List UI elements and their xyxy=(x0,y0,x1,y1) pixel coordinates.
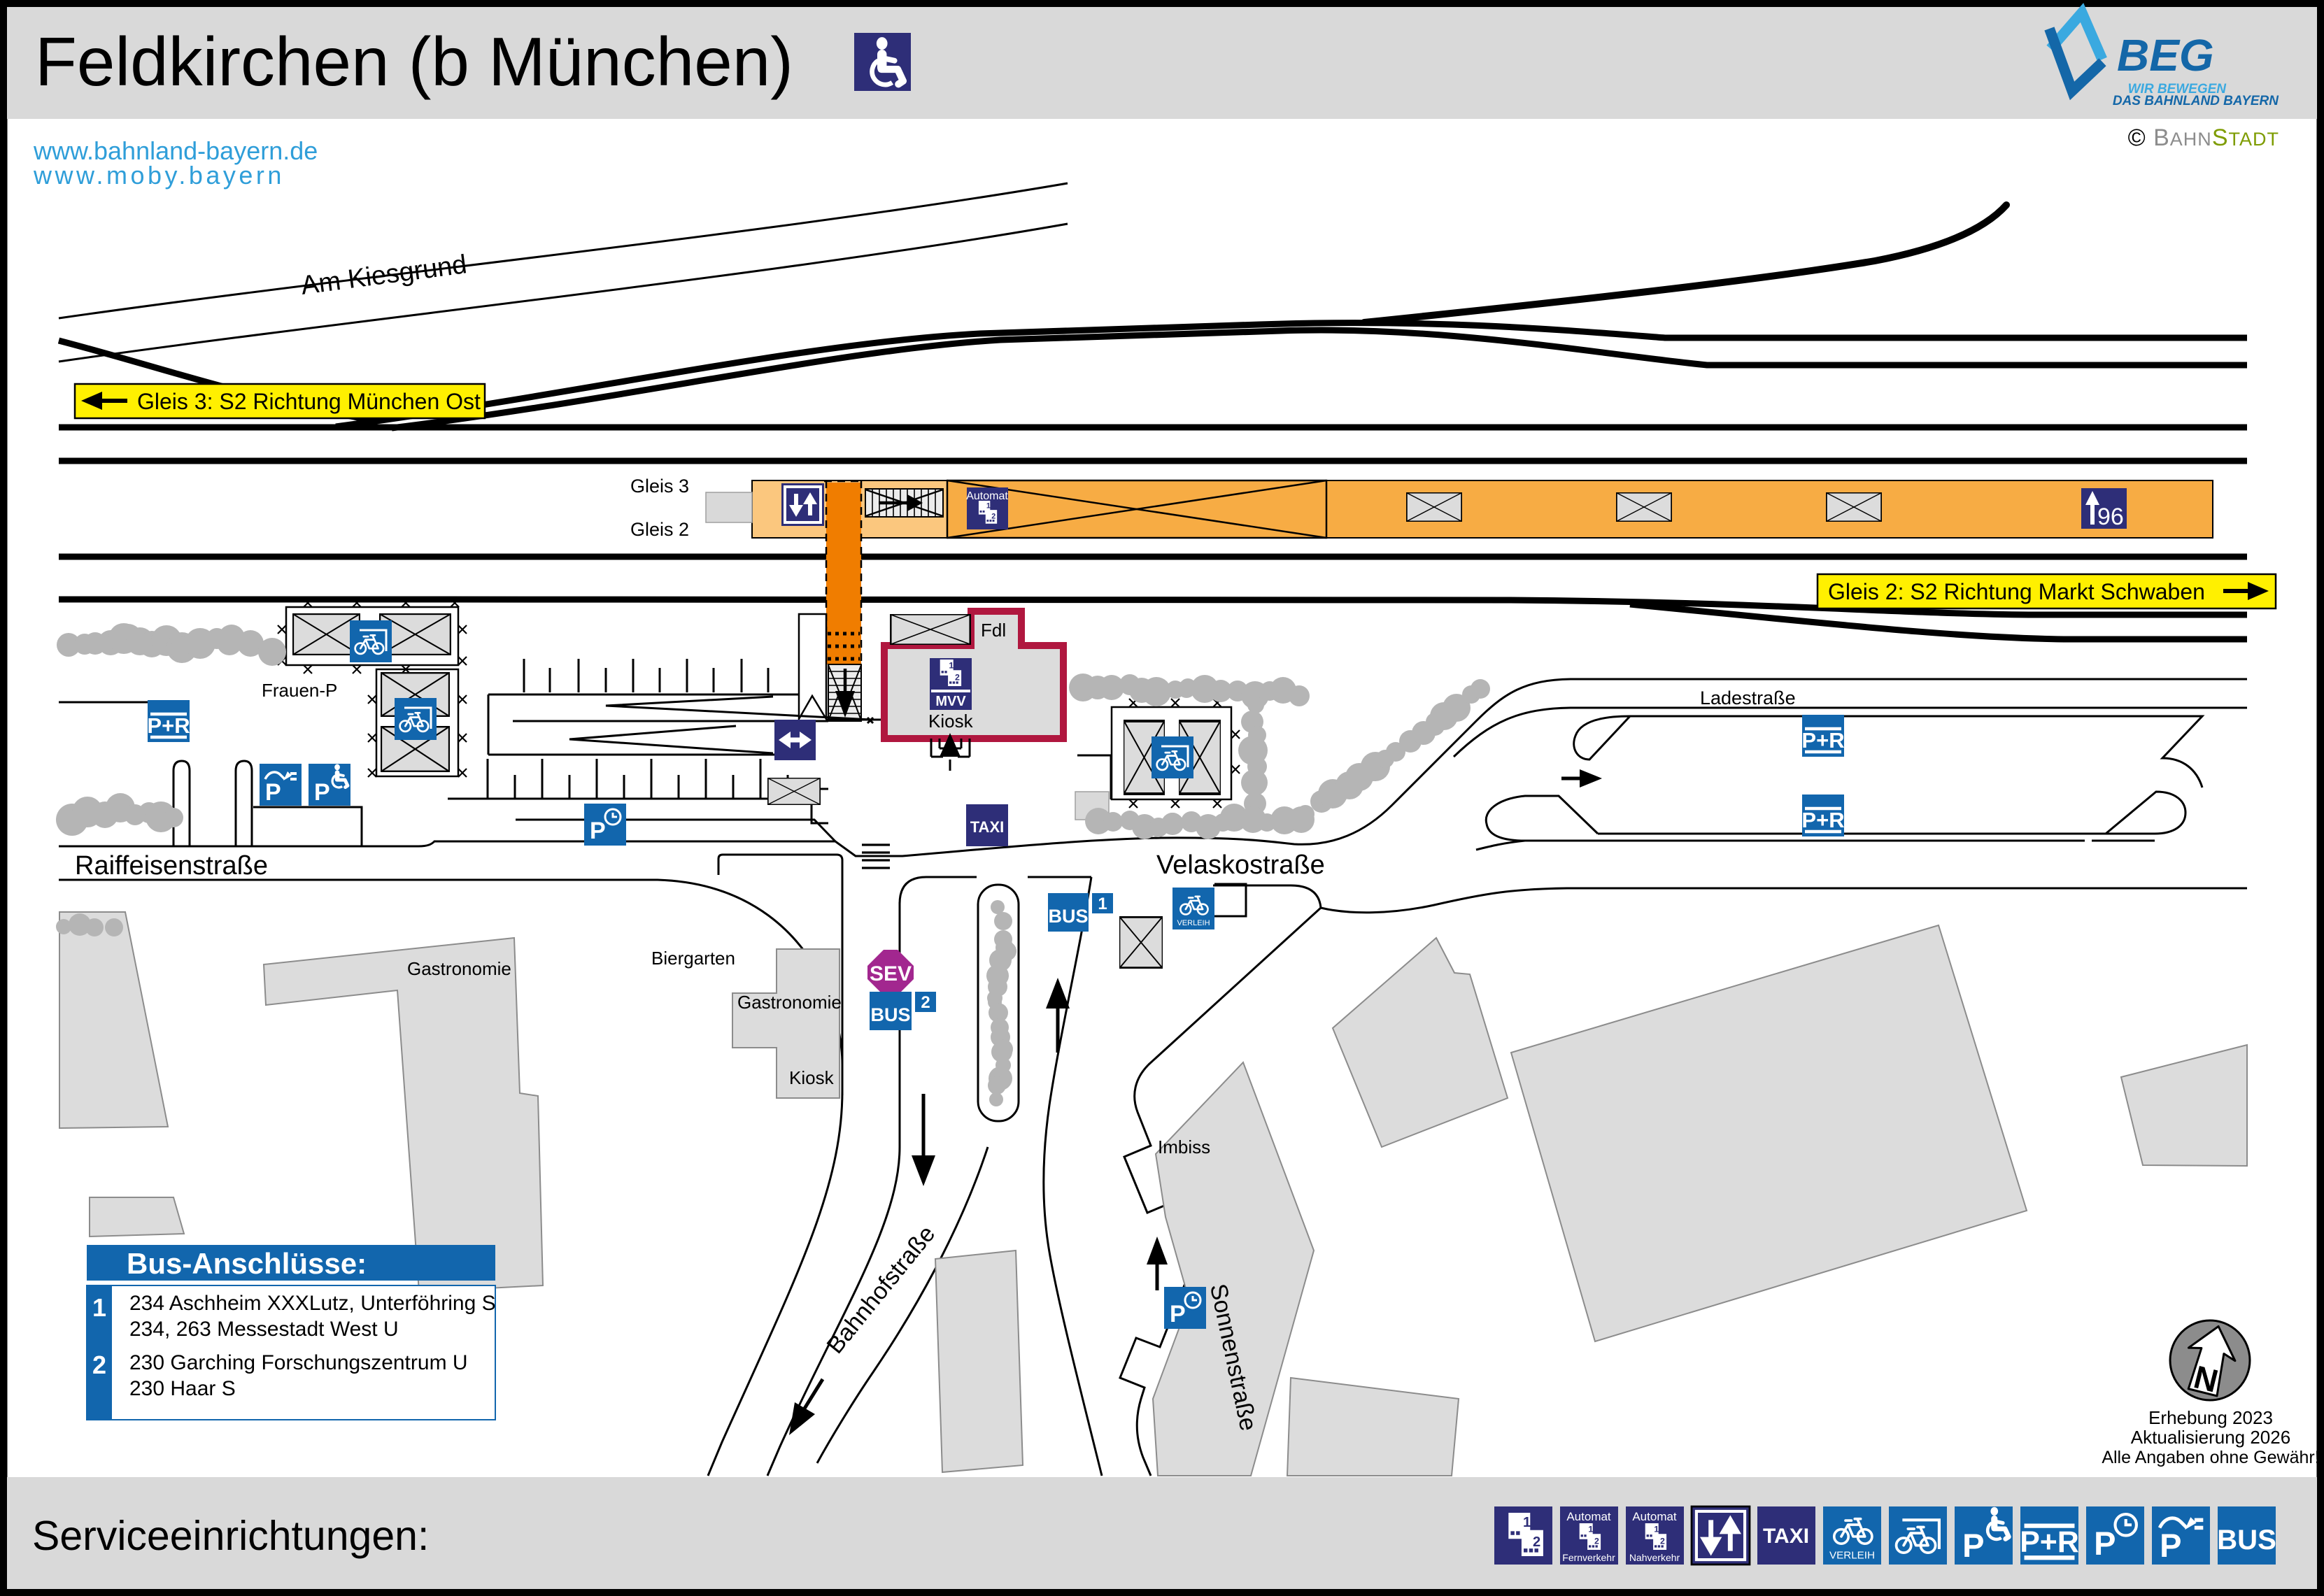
svg-text:234 Aschheim XXXLutz, Unterföh: 234 Aschheim XXXLutz, Unterföhring S xyxy=(129,1292,496,1315)
svg-text:234, 263 Messestadt West U: 234, 263 Messestadt West U xyxy=(129,1318,399,1341)
svg-text:Kiosk: Kiosk xyxy=(928,711,974,732)
svg-text:Fdl: Fdl xyxy=(981,620,1006,641)
svg-text:2: 2 xyxy=(92,1351,106,1379)
svg-text:Gastronomie: Gastronomie xyxy=(737,992,842,1013)
svg-text:Fernverkehr: Fernverkehr xyxy=(1562,1552,1615,1563)
svg-text:Biergarten: Biergarten xyxy=(651,948,735,969)
svg-text:Gleis 3: Gleis 3 xyxy=(630,476,689,497)
svg-text:Feldkirchen (b München): Feldkirchen (b München) xyxy=(35,23,793,100)
svg-text:DAS BAHNLAND BAYERN: DAS BAHNLAND BAYERN xyxy=(2113,94,2279,108)
svg-text:Automat: Automat xyxy=(1632,1510,1677,1523)
svg-text:Gleis 2: Gleis 2 xyxy=(630,519,689,540)
svg-text:Automat: Automat xyxy=(966,490,1008,502)
svg-text:1: 1 xyxy=(92,1293,106,1322)
svg-text:Alle Angaben ohne Gewähr!: Alle Angaben ohne Gewähr! xyxy=(2102,1448,2319,1467)
svg-text:TAXI: TAXI xyxy=(1763,1525,1809,1548)
svg-text:Kiosk: Kiosk xyxy=(789,1067,835,1088)
svg-text:Gastronomie: Gastronomie xyxy=(407,958,511,979)
svg-text:230 Haar S: 230 Haar S xyxy=(129,1377,236,1400)
svg-text:Frauen-P: Frauen-P xyxy=(262,680,337,701)
svg-text:Aktualisierung 2026: Aktualisierung 2026 xyxy=(2131,1427,2290,1448)
svg-text:230 Garching Forschungszentrum: 230 Garching Forschungszentrum U xyxy=(129,1351,468,1374)
svg-text:96: 96 xyxy=(2097,504,2124,530)
svg-text:www.moby.bayern: www.moby.bayern xyxy=(33,161,285,190)
svg-text:Erhebung 2023: Erhebung 2023 xyxy=(2148,1407,2273,1428)
svg-text:Nahverkehr: Nahverkehr xyxy=(1629,1552,1680,1563)
svg-text:Velaskostraße: Velaskostraße xyxy=(1156,850,1325,880)
svg-text:Serviceeinrichtungen:: Serviceeinrichtungen: xyxy=(32,1513,429,1559)
svg-text:2: 2 xyxy=(921,993,930,1012)
svg-text:Raiffeisenstraße: Raiffeisenstraße xyxy=(75,851,268,881)
svg-text:Automat: Automat xyxy=(1566,1510,1611,1523)
svg-text:BUS: BUS xyxy=(1048,906,1088,927)
svg-text:Gleis 3: S2 Richtung München O: Gleis 3: S2 Richtung München Ost xyxy=(137,389,481,414)
svg-text:Ladestraße: Ladestraße xyxy=(1700,687,1796,708)
svg-text:1: 1 xyxy=(1098,895,1107,913)
svg-text:Gleis 2: S2 Richtung Markt Sch: Gleis 2: S2 Richtung Markt Schwaben xyxy=(1828,579,2205,604)
svg-text:BEG: BEG xyxy=(2117,30,2214,80)
svg-text:© BAHNSTADT: © BAHNSTADT xyxy=(2128,124,2279,151)
svg-text:MVV: MVV xyxy=(935,694,966,709)
svg-text:SEV: SEV xyxy=(870,962,912,985)
svg-text:Imbiss: Imbiss xyxy=(1158,1137,1210,1157)
svg-text:Bus-Anschlüsse:: Bus-Anschlüsse: xyxy=(127,1247,367,1280)
svg-text:BUS: BUS xyxy=(870,1004,910,1025)
